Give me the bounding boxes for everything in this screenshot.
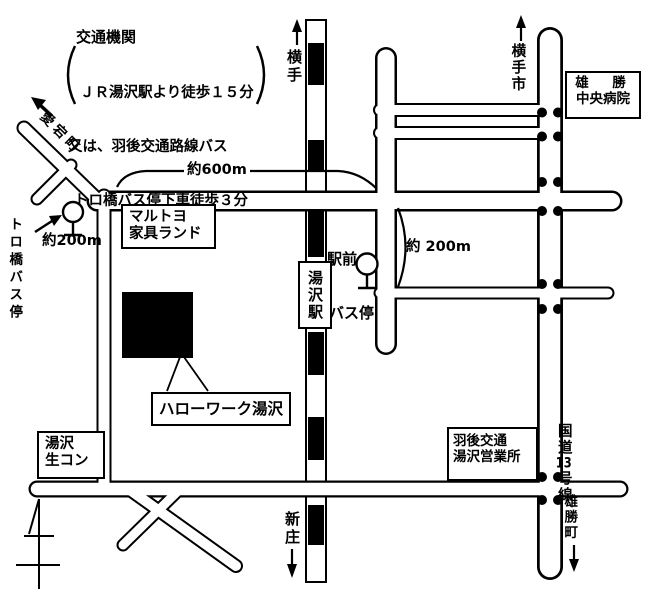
- hellowork-building: [122, 292, 193, 358]
- concrete-company-box: 湯沢 生コン: [37, 431, 105, 479]
- bus-office-line-1: 羽後交通: [453, 433, 532, 449]
- distance-600m: 約600m: [184, 162, 250, 179]
- up-arrow-icon: [292, 19, 302, 45]
- hellowork-callout-lines: [167, 357, 208, 391]
- station-box: 湯沢駅: [298, 261, 332, 329]
- furniture-store-box: マルトヨ 家具ランド: [121, 204, 216, 249]
- bus-office-box: 羽後交通 湯沢営業所: [447, 427, 538, 481]
- north-arrow-icon: [16, 499, 60, 589]
- ekimae-line-2: バス停: [327, 304, 374, 322]
- up-arrow-icon: [516, 15, 526, 41]
- distance-200m-torobashi: 約200m: [42, 233, 102, 250]
- ekimae-bus-stop-label: 駅前 バス停: [327, 214, 374, 358]
- hospital-line-1: 雄 勝: [570, 75, 636, 91]
- transit-note-line-2: 又は、羽後交通路線バス: [68, 138, 254, 156]
- transit-note-line-1: ＪＲ湯沢駅より徒歩１５分: [68, 84, 254, 102]
- direction-label-yokote: 横手: [285, 49, 303, 85]
- direction-label-yokote-city: 横手市: [508, 43, 525, 93]
- distance-200m-route13: 約 200m: [406, 239, 471, 256]
- route13-label: 国道13号線: [537, 351, 589, 504]
- access-map: 交通機関 ＪＲ湯沢駅より徒歩１５分 又は、羽後交通路線バス トロ橋バス停下車徒歩…: [0, 0, 659, 598]
- concrete-line-2: 生コン: [45, 453, 97, 470]
- route13-pre: 国道: [556, 423, 572, 456]
- down-arrow-icon: [569, 545, 579, 572]
- concrete-line-1: 湯沢: [45, 436, 97, 453]
- bracket-200m: [398, 208, 406, 287]
- station-name: 湯沢駅: [306, 270, 324, 321]
- down-arrow-icon: [287, 549, 297, 578]
- hellowork-label-box: ハローワーク湯沢: [151, 392, 291, 426]
- hospital-line-2: 中央病院: [570, 91, 636, 107]
- torobashi-bus-stop-label: トロ橋バス停: [6, 217, 22, 322]
- hellowork-label: ハローワーク湯沢: [159, 400, 283, 419]
- hospital-box: 雄 勝 中央病院: [565, 71, 641, 119]
- bus-office-line-2: 湯沢営業所: [453, 449, 532, 465]
- route13-post: 号線: [556, 471, 572, 504]
- ekimae-line-1: 駅前: [327, 250, 374, 268]
- torobashi-pointer-arrow-icon: [35, 215, 62, 232]
- transit-note-title: 交通機関: [76, 28, 136, 46]
- route13-number: 13: [556, 456, 572, 471]
- furniture-line-1: マルトヨ: [129, 209, 208, 226]
- furniture-line-2: 家具ランド: [129, 226, 208, 243]
- direction-label-shinjo: 新庄: [283, 511, 301, 547]
